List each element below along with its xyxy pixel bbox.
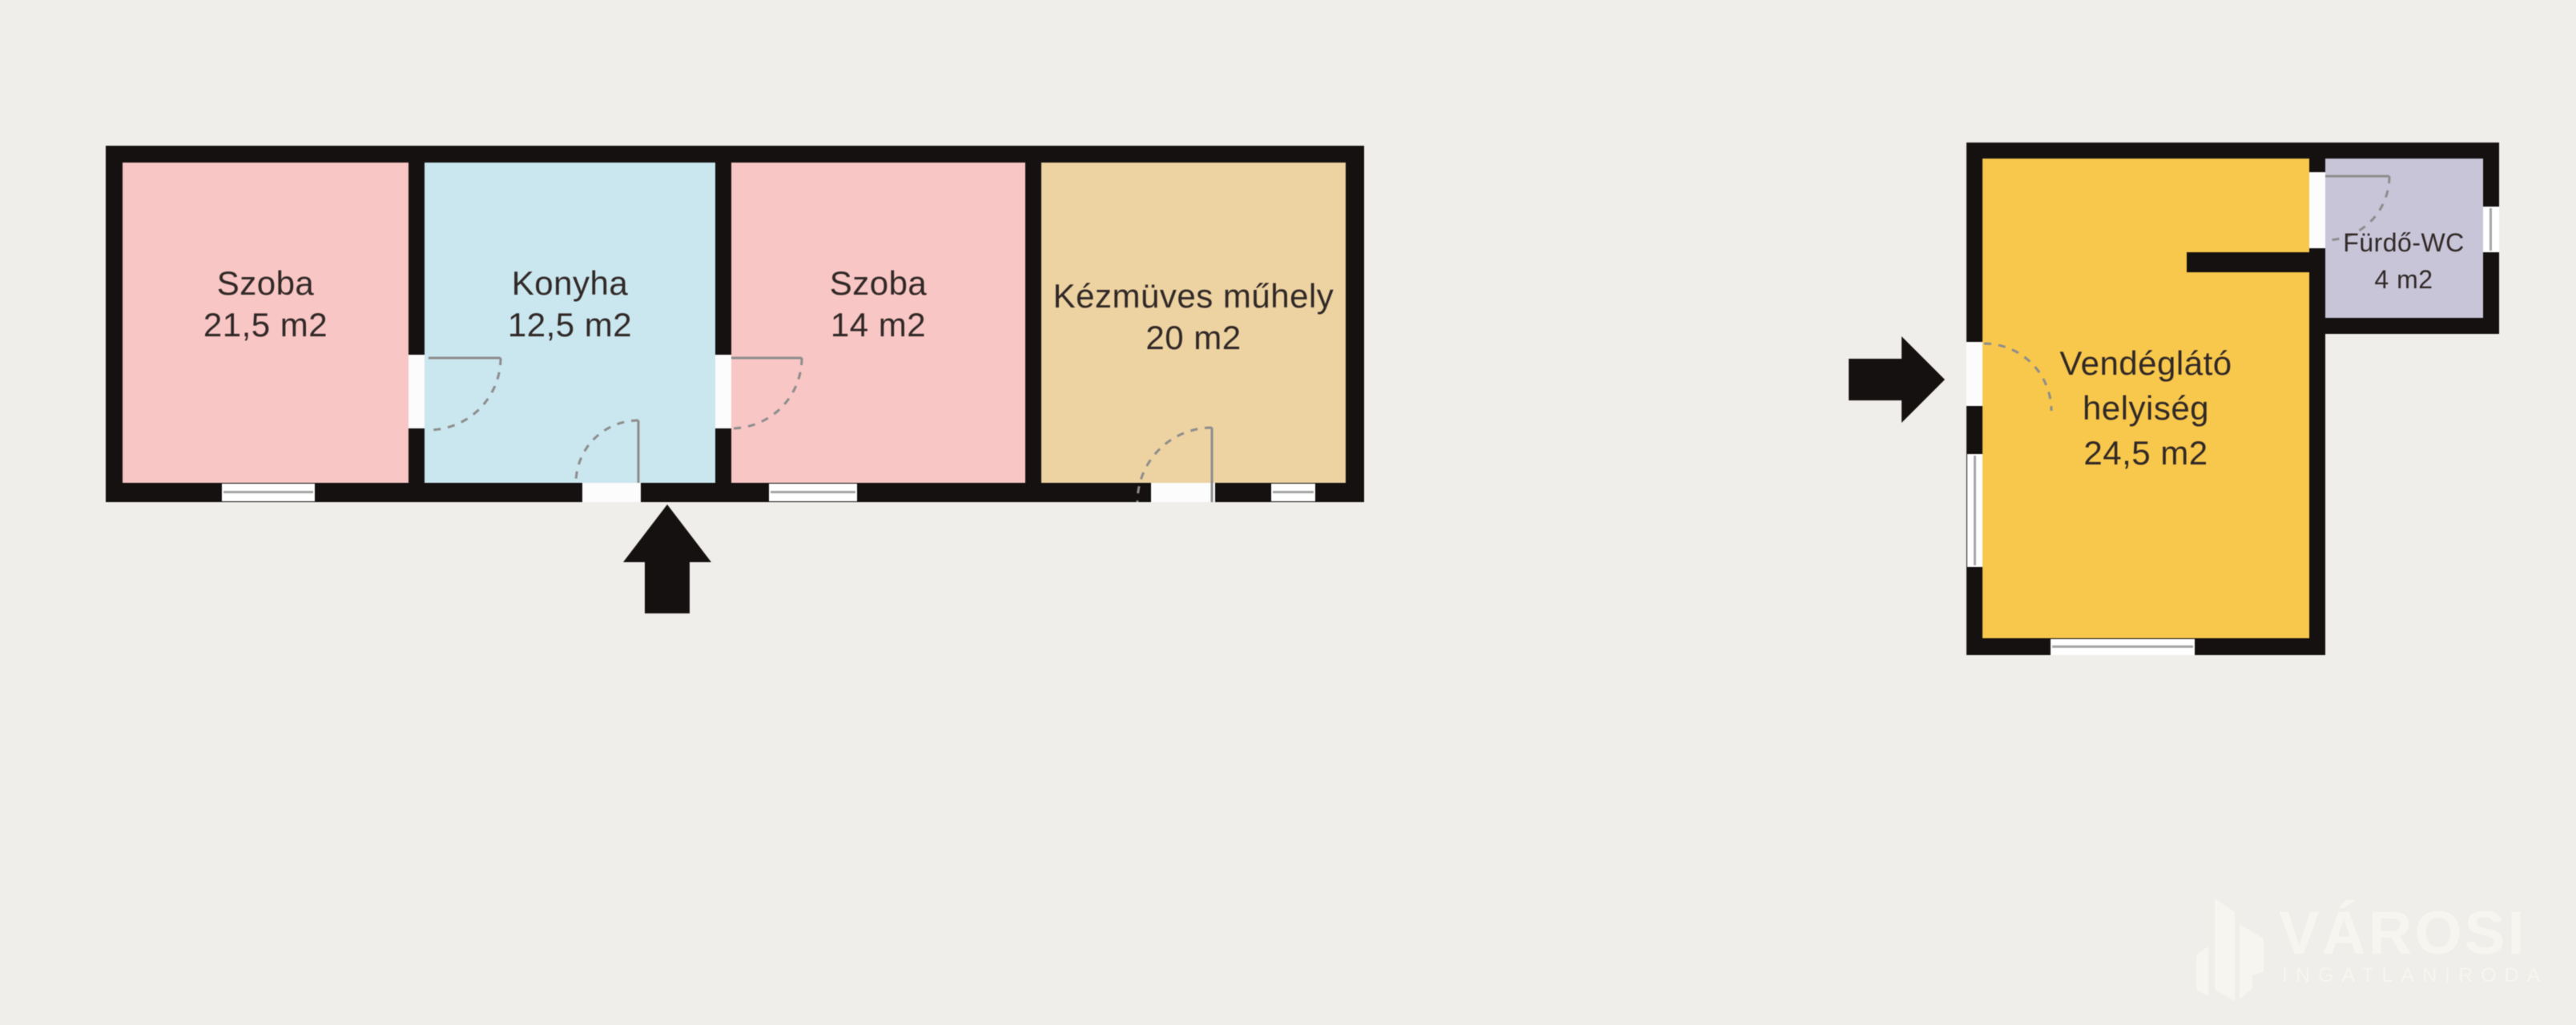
brand-buildings-icon xyxy=(2196,892,2270,1006)
room-label-szoba-1: Szoba 21,5 m2 xyxy=(123,263,409,346)
room-name: Kézmüves műhely xyxy=(1029,275,1358,317)
window-szoba1 xyxy=(222,484,315,501)
door-opening-konyha-szoba2 xyxy=(715,355,731,428)
room-label-szoba-2: Szoba 14 m2 xyxy=(731,263,1025,346)
room-area: 24,5 m2 xyxy=(1982,431,2309,476)
room-area: 14 m2 xyxy=(731,304,1025,346)
room-name: Szoba xyxy=(123,263,409,304)
room-label-muhely: Kézmüves műhely 20 m2 xyxy=(1029,275,1358,359)
watermark-logo: VÁROSI INGATLANIRODA xyxy=(2196,890,2557,1011)
room-name: Vendéglátó xyxy=(1982,341,2309,386)
room-label-vendeglato: Vendéglátó helyiség 24,5 m2 xyxy=(1982,341,2309,476)
room-name: Konyha xyxy=(425,263,715,304)
window-vendeglato-bottom xyxy=(2051,639,2195,655)
room-label-furdo: Fürdő-WC 4 m2 xyxy=(2320,224,2488,298)
room-name: Szoba xyxy=(731,263,1025,304)
room-label-konyha: Konyha 12,5 m2 xyxy=(425,263,715,346)
wall-stub-vestibule xyxy=(2187,252,2325,272)
room-area: 21,5 m2 xyxy=(123,304,409,346)
window-vendeglato-left xyxy=(1967,454,1982,567)
room-name: Fürdő-WC xyxy=(2320,224,2488,261)
door-opening-szoba1-konyha xyxy=(409,355,425,428)
brand-subtitle: INGATLANIRODA xyxy=(2282,964,2548,987)
floorplan-layer: Szoba 21,5 m2 Konyha 12,5 m2 Szoba 14 m2… xyxy=(0,0,2576,1025)
room-area: 4 m2 xyxy=(2320,261,2488,298)
floorplan-canvas: Szoba 21,5 m2 Konyha 12,5 m2 Szoba 14 m2… xyxy=(0,0,2576,1025)
door-opening-muhely-entrance xyxy=(1151,483,1215,502)
entrance-arrow-up-icon xyxy=(623,504,711,613)
entrance-arrow-right-icon xyxy=(1849,336,1945,423)
window-muhely xyxy=(1271,484,1315,501)
room-area: 20 m2 xyxy=(1029,317,1358,359)
room-name-line2: helyiség xyxy=(1982,386,2309,431)
door-opening-konyha-entrance xyxy=(582,483,641,502)
door-opening-vendeglato-entrance xyxy=(1966,342,1982,406)
window-szoba2 xyxy=(769,484,857,501)
brand-name: VÁROSI xyxy=(2279,898,2526,968)
room-area: 12,5 m2 xyxy=(425,304,715,346)
